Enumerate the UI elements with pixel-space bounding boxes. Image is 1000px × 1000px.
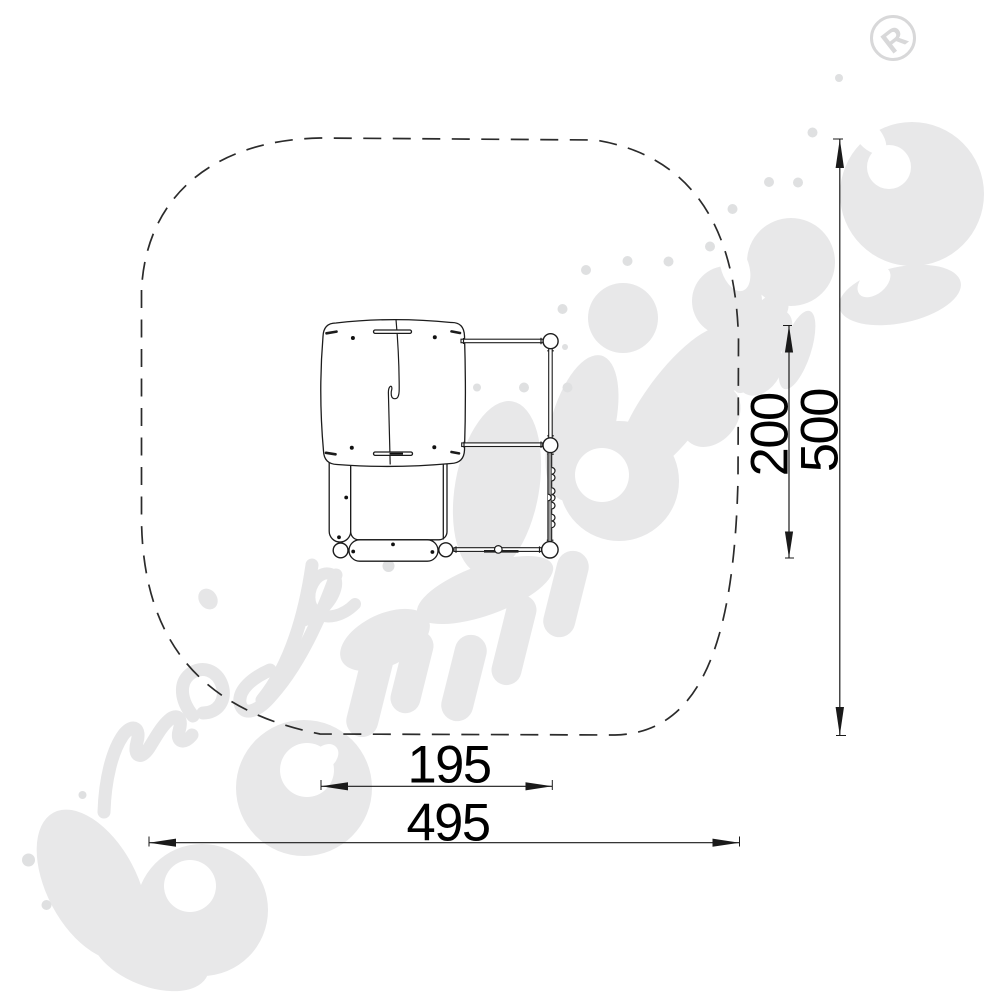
svg-text:195: 195 bbox=[407, 736, 490, 795]
svg-text:500: 500 bbox=[790, 389, 849, 472]
svg-text:495: 495 bbox=[406, 794, 489, 853]
